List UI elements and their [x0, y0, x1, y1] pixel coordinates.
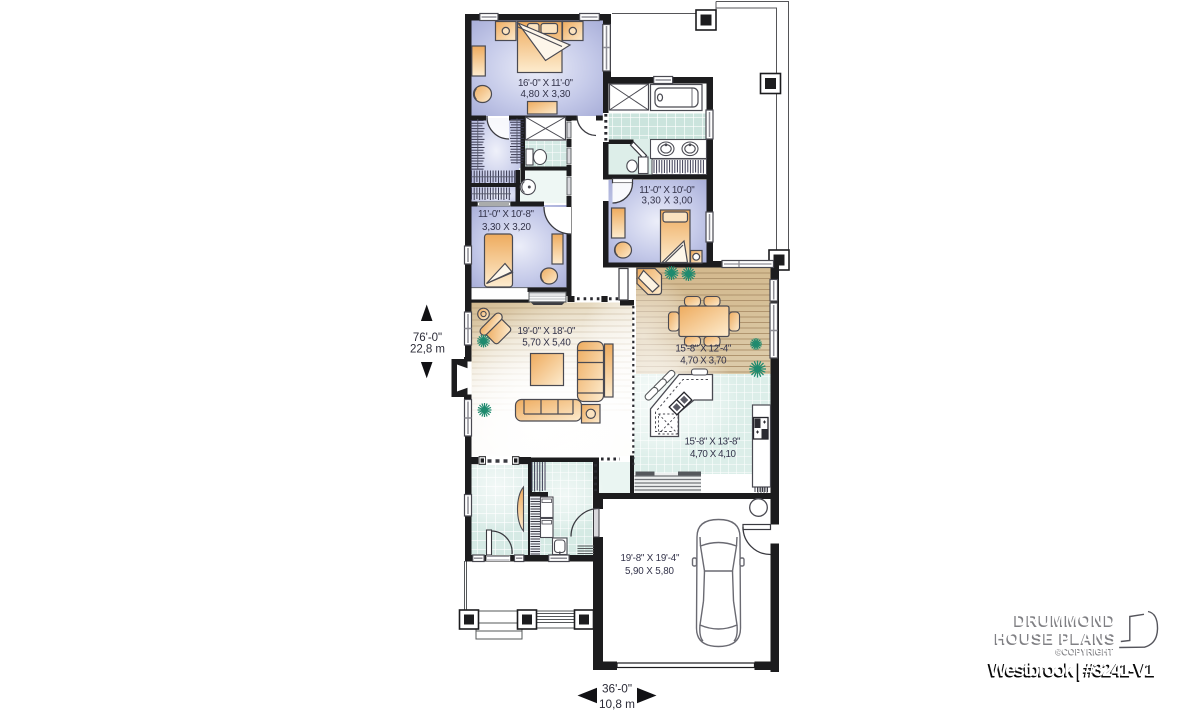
svg-text:11'-0" X 10'-0": 11'-0" X 10'-0": [639, 185, 695, 196]
svg-text:3,30 X 3,20: 3,30 X 3,20: [482, 222, 532, 233]
svg-text:©COPYRIGHT: ©COPYRIGHT: [1056, 647, 1115, 657]
svg-text:3,30 X 3,00: 3,30 X 3,00: [642, 196, 694, 207]
svg-text:HOUSE PLANS: HOUSE PLANS: [995, 631, 1116, 648]
svg-text:15'-8" X 12'-4": 15'-8" X 12'-4": [675, 343, 732, 354]
svg-text:DRUMMOND: DRUMMOND: [1015, 613, 1116, 630]
svg-text:76'-0": 76'-0": [413, 332, 442, 344]
svg-text:10,8 m: 10,8 m: [599, 697, 635, 711]
svg-text:5,90 X 5,80: 5,90 X 5,80: [625, 566, 675, 577]
svg-text:16'-0" X 11'-0": 16'-0" X 11'-0": [518, 78, 574, 89]
svg-text:4,80 X 3,30: 4,80 X 3,30: [521, 89, 572, 100]
svg-text:36'-0": 36'-0": [602, 682, 632, 696]
svg-text:5,70 X 5,40: 5,70 X 5,40: [522, 338, 571, 349]
svg-text:11'-0" X 10'-8": 11'-0" X 10'-8": [478, 209, 535, 220]
svg-text:4,70 X 3,70: 4,70 X 3,70: [680, 356, 727, 367]
svg-text:4,70 X 4,10: 4,70 X 4,10: [690, 449, 737, 460]
svg-text:15'-8" X 13'-8": 15'-8" X 13'-8": [685, 436, 742, 447]
svg-text:Westbrook | #3241-V1: Westbrook | #3241-V1: [989, 659, 1156, 681]
svg-text:19'-8" X 19'-4": 19'-8" X 19'-4": [621, 553, 681, 564]
svg-text:22,8 m: 22,8 m: [410, 344, 445, 356]
svg-text:19'-0" X 18'-0": 19'-0" X 18'-0": [518, 326, 577, 337]
